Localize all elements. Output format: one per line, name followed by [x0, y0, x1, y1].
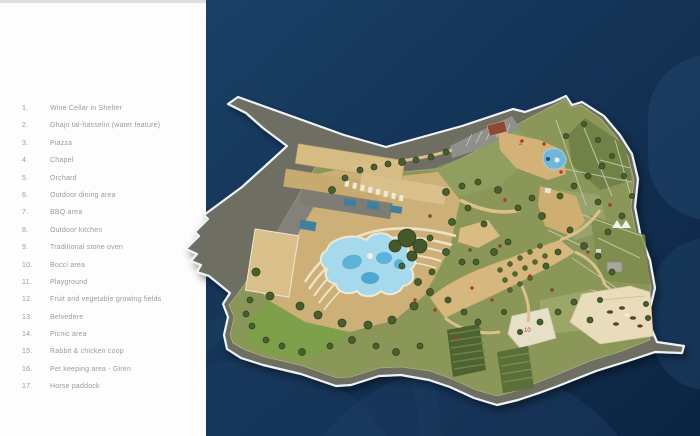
presentation-slide: 1.Wine Cellar in Shelter 2.Ghajn tal-has… — [0, 0, 700, 436]
legend-item-number: 9. — [22, 243, 50, 252]
legend-item: 6.Outdoor dining area — [22, 191, 161, 208]
legend-item: 5.Orchard — [22, 174, 161, 191]
map-marker-2: 2 — [519, 141, 523, 147]
legend-item-number: 1. — [22, 104, 50, 113]
legend-item-label: Piazza — [50, 139, 161, 148]
legend-item-number: 13. — [22, 313, 50, 322]
legend-item-number: 10. — [22, 261, 50, 270]
legend-item-label: Belvedere — [50, 313, 161, 322]
legend-item: 11.Playground — [22, 278, 161, 295]
legend-item-number: 6. — [22, 191, 50, 200]
legend-item: 15.Rabbit & chicken coop — [22, 347, 161, 364]
legend-item-number: 14. — [22, 330, 50, 339]
legend-item-number: 11. — [22, 278, 50, 287]
rooftop-pools — [299, 198, 402, 231]
legend-item-label: Chapel — [50, 156, 161, 165]
legend-item-number: 2. — [22, 121, 50, 130]
paths-and-plazas — [352, 131, 628, 348]
legend-item-number: 17. — [22, 382, 50, 391]
tree-cluster — [389, 229, 427, 261]
trees — [243, 121, 651, 355]
legend-item-label: Outdoor dining area — [50, 191, 161, 200]
legend-item-number: 8. — [22, 226, 50, 235]
horse-paddock — [570, 286, 653, 344]
legend-item-number: 4. — [22, 156, 50, 165]
site-interior — [229, 99, 651, 396]
legend-item-label: Outdoor kitchen — [50, 226, 161, 235]
resort-buildings — [245, 144, 460, 332]
legend-item-label: Playground — [50, 278, 161, 287]
legend-item: 17.Horse paddock — [22, 382, 161, 399]
legend-item-number: 3. — [22, 139, 50, 148]
legend-item-label: Horse paddock — [50, 382, 161, 391]
legend-panel: 1.Wine Cellar in Shelter 2.Ghajn tal-has… — [0, 0, 206, 436]
legend-item: 8.Outdoor kitchen — [22, 226, 161, 243]
site-plan: 2 10 — [186, 96, 684, 405]
legend-item-label: Bocci area — [50, 261, 161, 270]
legend-item: 4.Chapel — [22, 156, 161, 173]
field-boundary-walls — [545, 120, 642, 300]
site-outline-and-roads — [186, 96, 684, 405]
map-marker-10: 10 — [524, 328, 531, 334]
legend-item-label: Picnic area — [50, 330, 161, 339]
rooftop-detail-strips — [344, 180, 405, 201]
lagoon-pool — [321, 233, 415, 296]
legend-item: 13.Belvedere — [22, 313, 161, 330]
legend-item-label: Pet keeping area - Giren — [50, 365, 161, 374]
legend-item: 14.Picnic area — [22, 330, 161, 347]
legend-item-number: 12. — [22, 295, 50, 304]
crop-fields — [447, 324, 534, 393]
legend-item-label: Traditional stone oven — [50, 243, 161, 252]
field-patches — [245, 118, 650, 360]
legend-item-label: Wine Cellar in Shelter — [50, 104, 161, 113]
legend-item: 12.Fruit and vegetable growing fields — [22, 295, 161, 312]
slide-top-edge — [0, 0, 206, 3]
legend-item-number: 7. — [22, 208, 50, 217]
parking-area — [450, 116, 520, 158]
legend-item-label: Fruit and vegetable growing fields — [50, 295, 161, 304]
pond-water-feature — [543, 149, 566, 170]
legend-item: 3.Piazza — [22, 139, 161, 156]
legend-item: 10.Bocci area — [22, 261, 161, 278]
legend-item: 7.BBQ area — [22, 208, 161, 225]
feature-markers: 2 10 — [413, 139, 611, 339]
legend-item: 9.Traditional stone oven — [22, 243, 161, 260]
horses — [607, 306, 643, 327]
legend-item-label: BBQ area — [50, 208, 161, 217]
legend-item: 2.Ghajn tal-hasselin (water feature) — [22, 121, 161, 138]
legend-item-label: Orchard — [50, 174, 161, 183]
legend-list: 1.Wine Cellar in Shelter 2.Ghajn tal-has… — [22, 104, 161, 400]
legend-item-number: 16. — [22, 365, 50, 374]
small-structures — [487, 121, 631, 272]
legend-item: 1.Wine Cellar in Shelter — [22, 104, 161, 121]
legend-item-label: Ghajn tal-hasselin (water feature) — [50, 121, 161, 130]
legend-item-number: 5. — [22, 174, 50, 183]
legend-item: 16.Pet keeping area - Giren — [22, 365, 161, 382]
legend-item-number: 15. — [22, 347, 50, 356]
legend-item-label: Rabbit & chicken coop — [50, 347, 161, 356]
orchard-trees — [498, 244, 548, 293]
navy-background — [206, 0, 700, 436]
terrace-steps — [305, 228, 456, 310]
